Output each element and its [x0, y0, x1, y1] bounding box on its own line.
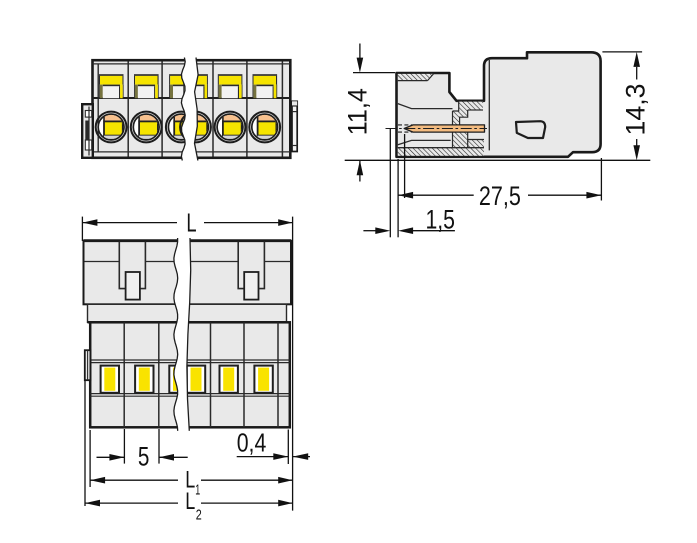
svg-text:2: 2 [196, 508, 202, 524]
svg-text:L: L [185, 488, 195, 515]
svg-text:1,5: 1,5 [425, 205, 455, 235]
svg-text:27,5: 27,5 [479, 181, 521, 211]
svg-text:0,4: 0,4 [237, 427, 267, 457]
svg-text:5: 5 [138, 441, 150, 471]
svg-text:11,4: 11,4 [343, 88, 373, 135]
svg-text:14,3: 14,3 [621, 84, 651, 136]
svg-text:1: 1 [195, 483, 200, 499]
svg-text:L: L [186, 208, 196, 238]
